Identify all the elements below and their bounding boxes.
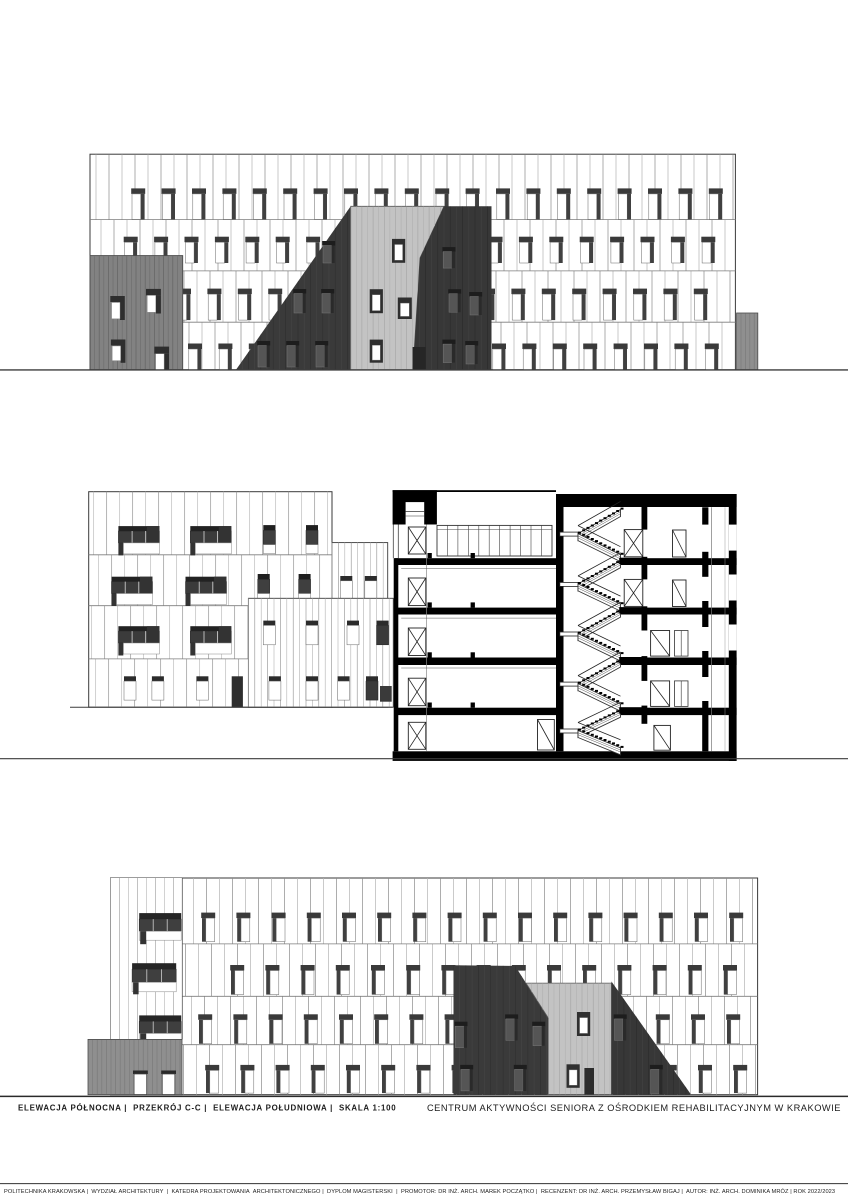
svg-text:CENTRUM AKTYWNOŚCI SENIORA Z O: CENTRUM AKTYWNOŚCI SENIORA Z OŚRODKIEM R… xyxy=(427,1102,841,1113)
svg-text:ELEWACJA PÓŁNOCNA | PRZEKRÓJ: ELEWACJA PÓŁNOCNA | PRZEKRÓJ C-C | ELEWA… xyxy=(18,1104,396,1113)
svg-text:POLITECHNIKA KRAKOWSKA | WYDZ: POLITECHNIKA KRAKOWSKA | WYDZIAŁ ARCHITE… xyxy=(4,1188,835,1195)
